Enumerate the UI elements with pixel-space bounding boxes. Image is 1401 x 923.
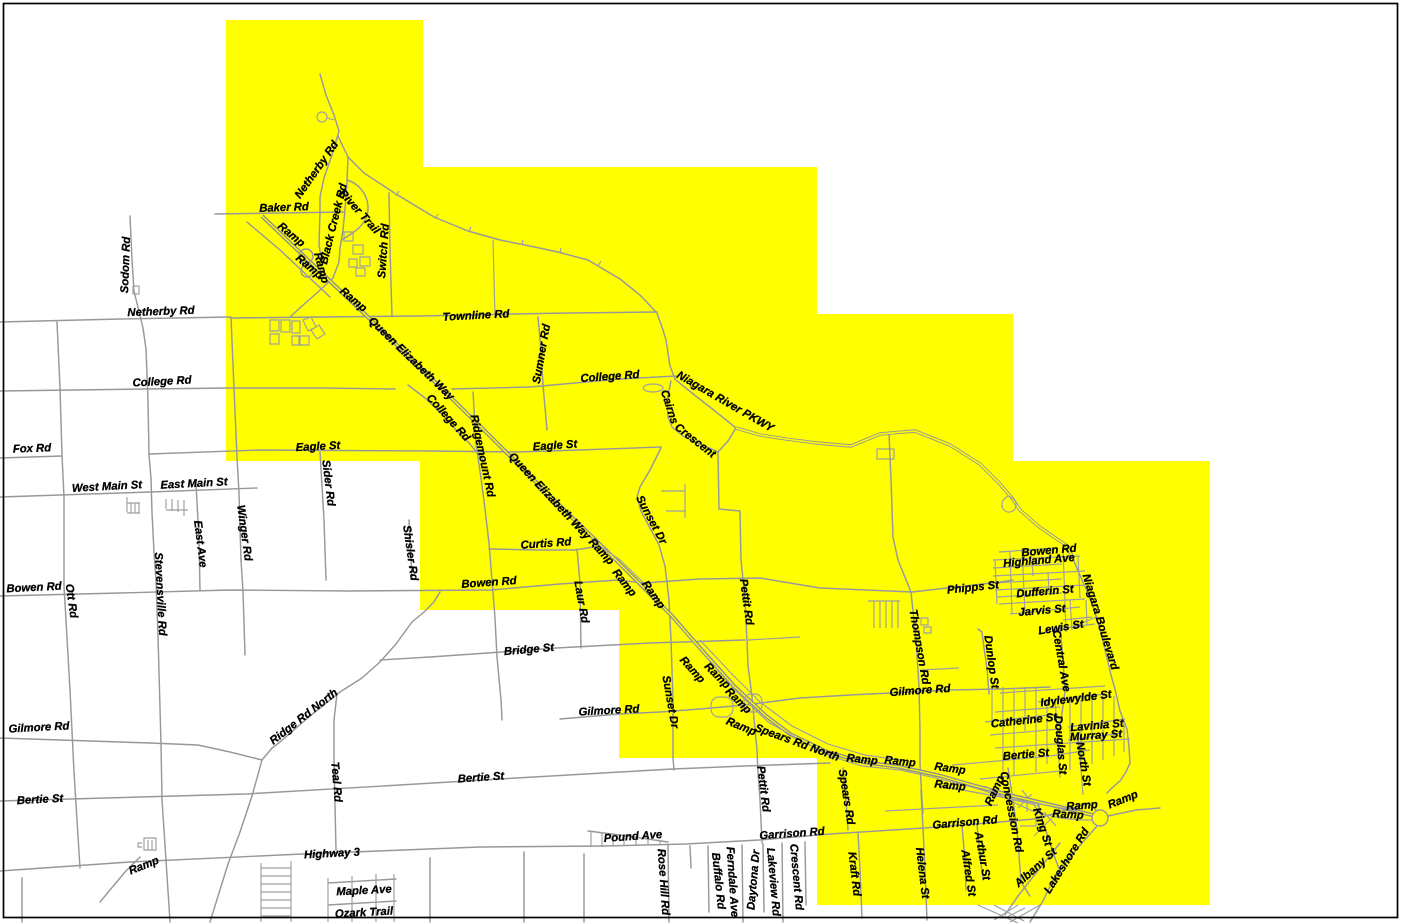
svg-text:Bertie St: Bertie St <box>16 793 64 807</box>
svg-text:Ramp: Ramp <box>1052 808 1084 822</box>
svg-text:Baker Rd: Baker Rd <box>259 201 310 215</box>
svg-text:Sodom Rd: Sodom Rd <box>119 235 133 293</box>
svg-text:Netherby Rd: Netherby Rd <box>127 305 196 319</box>
svg-text:Fox Rd: Fox Rd <box>13 442 53 455</box>
svg-text:Eagle St: Eagle St <box>295 440 341 454</box>
